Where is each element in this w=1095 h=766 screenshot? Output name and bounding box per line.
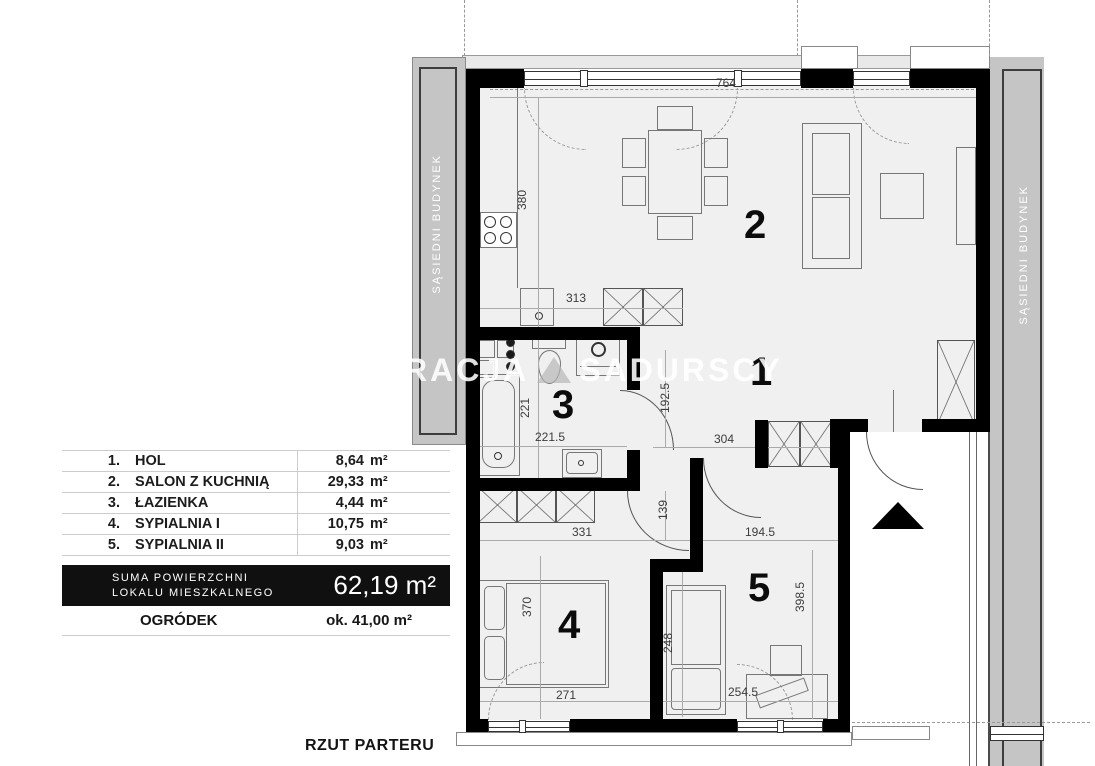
dimension-label: 194.5 [745, 525, 775, 539]
site-line [797, 0, 798, 56]
site-line [989, 0, 990, 56]
wall-hall-mid [690, 458, 703, 572]
garden-value: ok. 41,00 m² [326, 612, 412, 629]
dimension-label: 254.5 [728, 685, 758, 699]
neighbor-right-window [990, 726, 1044, 741]
hall-wardrobe [768, 421, 800, 467]
window [488, 721, 570, 732]
room-number-sypialnia1: 4 [558, 605, 580, 645]
legend-room-area: 29,33 [298, 474, 364, 490]
window-mullion [580, 70, 588, 87]
legend-row: 1.HOL 8,64m² [62, 450, 450, 472]
wall-bottom [466, 719, 488, 732]
floor-plan-canvas: SĄSIEDNI BUDYNEK SĄSIEDNI BUDYNEK [0, 0, 1095, 766]
dimension-label: 221 [518, 398, 532, 418]
pillar [910, 46, 990, 69]
legend-row-number: 1. [62, 453, 120, 469]
legend-row-number: 2. [62, 474, 120, 490]
hob-burner [500, 232, 512, 244]
site-line [464, 0, 465, 56]
legend-area-unit: m² [370, 537, 388, 553]
vestibule-wall [969, 432, 977, 766]
entrance-arrow [872, 502, 924, 529]
dim-line [540, 556, 541, 719]
dimension-label: 370 [520, 597, 534, 617]
legend-room-area: 8,64 [298, 453, 364, 469]
drawing-title: RZUT PARTERU [305, 737, 434, 755]
dim-line [477, 308, 683, 309]
entrance-step [852, 726, 930, 740]
pillar [801, 46, 858, 69]
dining-chair [704, 138, 728, 168]
wall-top [801, 69, 853, 88]
kitchen-sink-drain [535, 312, 543, 320]
legend-row-number: 5. [62, 537, 120, 553]
legend-room-name: SALON Z KUCHNIĄ [135, 474, 270, 490]
tv-cabinet [956, 147, 976, 245]
wall-wardrobe-flank [755, 420, 768, 468]
legend-row: 3.ŁAZIENKA 4,44m² [62, 493, 450, 514]
wall-lower-right [838, 432, 850, 732]
bedroom1-wardrobe [517, 487, 556, 523]
hall-wardrobe [800, 421, 832, 467]
dining-chair [622, 176, 646, 206]
legend-area-unit: m² [370, 495, 388, 511]
legend-room-area: 4,44 [298, 495, 364, 511]
hob-burner [484, 216, 496, 228]
door-arc-entrance [866, 432, 923, 490]
legend-row: 5.SYPIALNIA II 9,03m² [62, 535, 450, 556]
dim-line [480, 540, 838, 541]
room-number-salon: 2 [744, 205, 766, 245]
legend-room-area: 9,03 [298, 537, 364, 553]
dining-chair [704, 176, 728, 206]
hob-burner [500, 216, 512, 228]
legend-room-name: SYPIALNIA I [135, 516, 220, 532]
bed-single-mattress [671, 590, 721, 665]
room-number-lazienka: 3 [552, 385, 574, 425]
watermark-part1: RACJA [404, 352, 529, 388]
watermark-logo-icon [537, 357, 571, 383]
window-mullion [777, 720, 784, 733]
dimension-label: 398.5 [793, 582, 807, 612]
dimension-label: 221.5 [535, 430, 565, 444]
window-mullion [519, 720, 526, 733]
legend-table: 1.HOL 8,64m² 2.SALON Z KUCHNIĄ 29,33m² 3… [62, 450, 450, 636]
legend-room-name: ŁAZIENKA [135, 495, 208, 511]
bedroom1-wardrobe [478, 487, 517, 523]
watermark: RACJASADURSCY [404, 352, 783, 389]
dim-line [538, 97, 539, 327]
legend-area-unit: m² [370, 474, 388, 490]
nightstand [770, 645, 802, 676]
bathtub-drain [494, 452, 502, 460]
dim-line [682, 559, 683, 717]
pillow [671, 668, 721, 710]
legend-row-number: 3. [62, 495, 120, 511]
dimension-label: 248 [661, 633, 675, 653]
dimension-label: 139 [656, 500, 670, 520]
dining-chair [657, 216, 693, 240]
total-label-line2: LOKALU MIESZKALNEGO [112, 586, 274, 601]
sink-drain [578, 460, 584, 466]
sofa-cushion [812, 133, 850, 195]
legend-row: 2.SALON Z KUCHNIĄ 29,33m² [62, 472, 450, 493]
window [853, 71, 910, 86]
dim-line [812, 550, 813, 719]
coffee-table [880, 173, 924, 219]
wall-bottom [823, 719, 850, 732]
dimension-label: 331 [572, 525, 592, 539]
dim-line [653, 447, 838, 448]
dining-table [648, 130, 702, 214]
legend-total-band: SUMA POWIERZCHNI LOKALU MIESZKALNEGO 62,… [62, 565, 450, 606]
dimension-label: 380 [515, 190, 529, 210]
kitchen-sink-cabinet [520, 288, 554, 326]
sofa-cushion [812, 197, 850, 259]
bedroom1-wardrobe [556, 487, 595, 523]
wall-bathroom-north [477, 327, 640, 340]
hall-wardrobe-tall [937, 340, 975, 424]
dim-line [480, 446, 627, 447]
kitchen-cabinet [643, 288, 683, 326]
dining-chair [622, 138, 646, 168]
total-label-line1: SUMA POWIERZCHNI [112, 571, 274, 586]
neighbor-building-right: SĄSIEDNI BUDYNEK [988, 57, 1044, 766]
wall-hall-south [830, 419, 868, 432]
kitchen-cabinet [603, 288, 643, 326]
wall-wardrobe-flank [830, 432, 843, 468]
legend-garden-row: OGRÓDEK ok. 41,00 m² [62, 606, 450, 636]
kitchen-counter-edge [517, 88, 518, 288]
watermark-part2: SADURSCY [579, 352, 783, 388]
dining-chair [657, 106, 693, 130]
total-area-value: 62,19 m² [333, 570, 450, 601]
legend-area-unit: m² [370, 516, 388, 532]
legend-room-name: HOL [135, 453, 166, 469]
dim-line [490, 97, 984, 98]
legend-room-name: SYPIALNIA II [135, 537, 224, 553]
wall-hall-south [922, 419, 990, 432]
dimension-label: 764 [716, 76, 736, 90]
wall-bathroom-south [466, 478, 640, 491]
wall-left [466, 69, 480, 732]
bottom-sill [456, 732, 852, 746]
neighbor-right-outline [1002, 69, 1042, 766]
room-number-sypialnia2: 5 [748, 568, 770, 608]
hob-burner [484, 232, 496, 244]
garden-label: OGRÓDEK [140, 612, 218, 629]
dimension-label: 304 [714, 432, 734, 446]
legend-row-number: 4. [62, 516, 120, 532]
entrance-door-leaf [893, 390, 894, 432]
window [524, 71, 801, 86]
pillow [484, 586, 505, 630]
wall-top [466, 69, 524, 88]
legend-row: 4.SYPIALNIA I 10,75m² [62, 514, 450, 535]
wall-right [976, 69, 990, 432]
legend-area-unit: m² [370, 453, 388, 469]
legend-room-area: 10,75 [298, 516, 364, 532]
pillow [484, 636, 505, 680]
neighbor-left-label: SĄSIEDNI BUDYNEK [431, 154, 443, 294]
neighbor-right-label: SĄSIEDNI BUDYNEK [1018, 185, 1030, 325]
dimension-label: 271 [556, 688, 576, 702]
dimension-label: 313 [566, 291, 586, 305]
